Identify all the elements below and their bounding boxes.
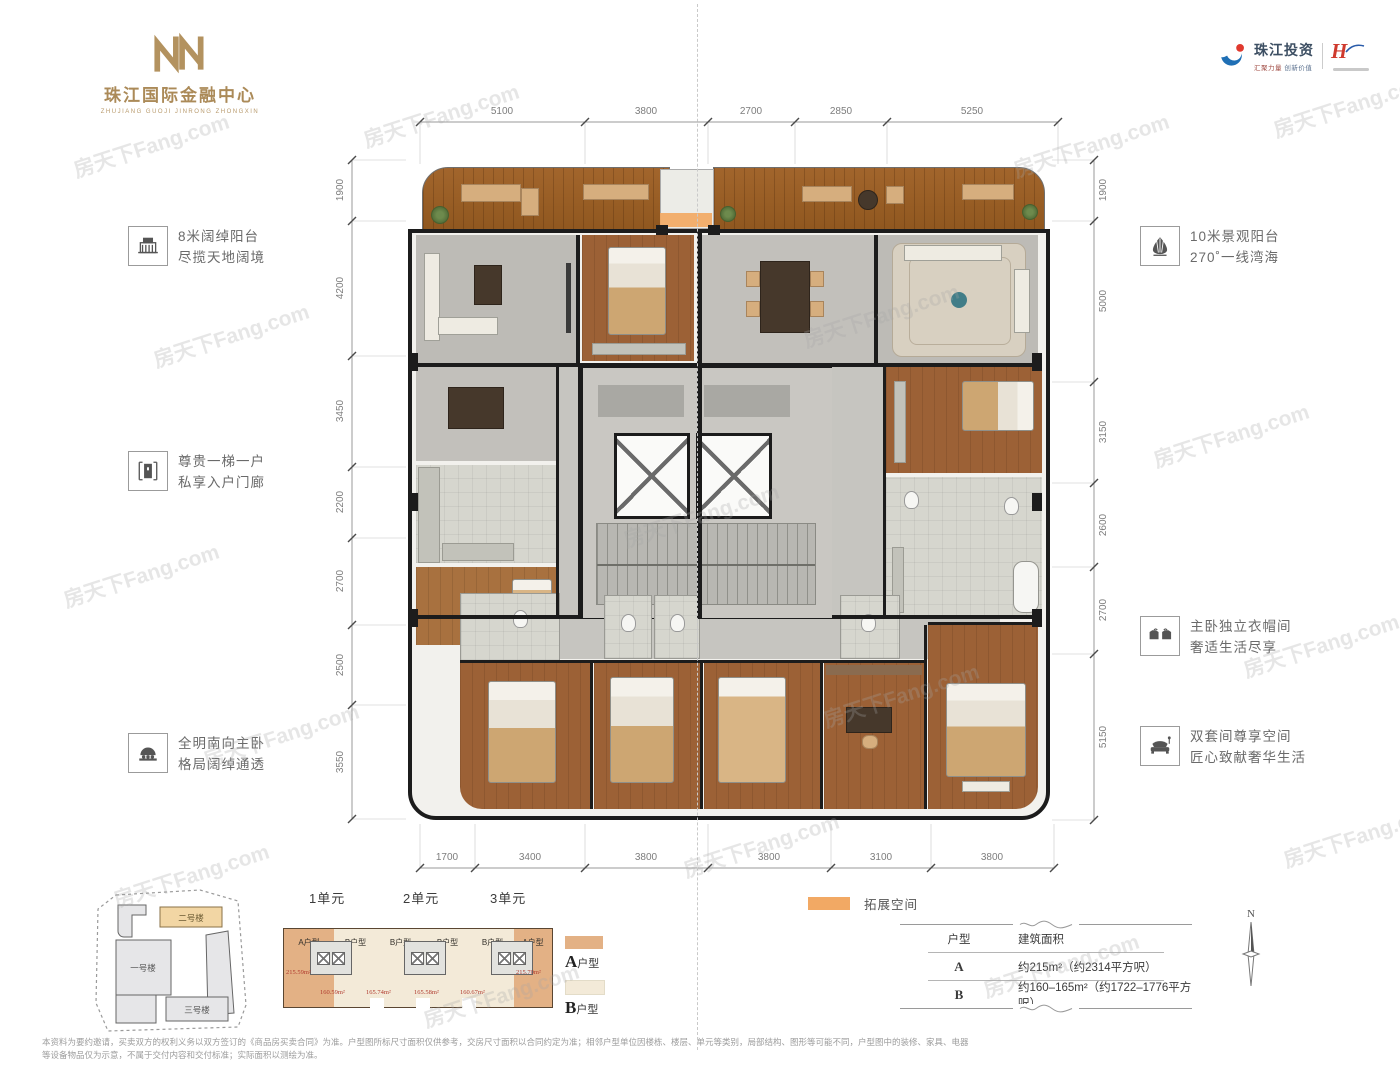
kitchen-left xyxy=(416,465,556,563)
svg-text:5000: 5000 xyxy=(1098,289,1109,312)
project-logo-mark-icon xyxy=(149,28,211,74)
watermark: 房天下Fang.com xyxy=(1279,796,1400,875)
wall xyxy=(874,235,878,363)
tv-cabinet xyxy=(566,263,571,333)
feature-text: 10米景观阳台 270˚一线湾海 xyxy=(1190,226,1280,268)
partner-logos: 珠江投资 汇聚力量 创新价值 H xyxy=(1218,40,1373,72)
chair xyxy=(810,271,824,287)
dining-room-right xyxy=(702,235,874,363)
column xyxy=(656,225,668,235)
wall xyxy=(832,615,1042,619)
wall xyxy=(700,663,703,809)
feature-desc: 270˚一线湾海 xyxy=(1190,247,1280,268)
feature-right-balcony: 10米景观阳台 270˚一线湾海 xyxy=(1140,226,1280,268)
dimension-line-left: 1900 4200 3450 2200 2700 2500 3550 xyxy=(330,150,410,830)
unit-1-label: 1单元 xyxy=(309,888,345,907)
shell-icon xyxy=(1140,226,1180,266)
watermark: 房天下Fang.com xyxy=(69,106,233,185)
svg-text:3400: 3400 xyxy=(519,852,542,863)
watermark: 房天下Fang.com xyxy=(149,296,313,375)
extension-swatch xyxy=(808,897,850,910)
plant xyxy=(431,206,449,224)
wall xyxy=(576,235,580,363)
bed xyxy=(488,681,556,783)
elevator-glyph xyxy=(411,952,424,965)
column xyxy=(408,353,418,371)
wall xyxy=(416,615,578,619)
type-a-letter: A xyxy=(565,952,577,971)
column xyxy=(1032,609,1042,627)
dimension-line-right: 1900 5000 3150 2600 2700 5150 xyxy=(1050,150,1130,830)
column xyxy=(408,609,418,627)
bathroom xyxy=(840,595,900,659)
type-a-label: A户型 xyxy=(565,952,605,972)
table-header-row: 户型 建筑面积 xyxy=(900,925,1192,952)
living-room-right xyxy=(878,235,1038,363)
balcony-lounge xyxy=(802,186,852,202)
site-building-1-label: 一号楼 xyxy=(130,963,156,973)
section-area: 165.58m² xyxy=(414,989,439,996)
svg-text:1900: 1900 xyxy=(1098,178,1109,201)
plant xyxy=(1022,204,1038,220)
section-area: 165.74m² xyxy=(366,989,391,996)
bench xyxy=(962,781,1010,792)
svg-text:2700: 2700 xyxy=(1098,598,1109,621)
feature-desc: 格局阔绰通透 xyxy=(178,754,265,775)
wall xyxy=(928,622,1038,625)
toilet xyxy=(670,614,685,632)
sofa xyxy=(438,317,498,335)
flourish-icon xyxy=(1013,1004,1079,1013)
sofa-icon xyxy=(1140,726,1180,766)
svg-text:3150: 3150 xyxy=(1098,420,1109,443)
floor-plan xyxy=(408,163,1050,820)
sofa xyxy=(904,245,1002,261)
column xyxy=(408,493,418,511)
feature-left-bedroom: 全明南向主卧 格局阔绰通透 xyxy=(128,733,265,775)
zhujiang-investment-icon xyxy=(1218,42,1246,70)
bedroom-4 xyxy=(594,663,700,809)
bathroom xyxy=(604,595,652,659)
balcony-icon xyxy=(128,226,168,266)
master-bedroom xyxy=(928,625,1038,809)
section-area: 160.67m² xyxy=(460,989,485,996)
elevator-glyph xyxy=(317,952,330,965)
dining-table xyxy=(760,261,810,333)
elevator-shaft xyxy=(696,433,772,519)
elevator-glyph xyxy=(513,952,526,965)
svg-text:5100: 5100 xyxy=(491,106,514,117)
type-a-swatch xyxy=(565,936,603,949)
kitchen-island xyxy=(442,543,514,561)
elevator-shaft xyxy=(614,433,690,519)
site-building-3-label: 三号楼 xyxy=(184,1005,210,1015)
svg-text:4200: 4200 xyxy=(335,276,346,299)
watermark: 房天下Fang.com xyxy=(59,536,223,615)
site-building-2-label: 二号楼 xyxy=(178,913,204,923)
entry-door-icon xyxy=(128,451,168,491)
feature-title: 主卧独立衣帽间 xyxy=(1190,616,1292,637)
unit-2-label: 2单元 xyxy=(403,888,439,907)
partner-swoosh-icon xyxy=(1345,43,1365,57)
feature-title: 10米景观阳台 xyxy=(1190,226,1280,247)
section-area: 215.70m² xyxy=(516,969,541,976)
bed xyxy=(608,247,666,335)
tagline-right: 创新价值 xyxy=(1284,65,1312,72)
balcony-chair xyxy=(886,186,904,204)
feature-title: 尊贵一梯一户 xyxy=(178,451,265,472)
bathroom xyxy=(654,595,700,659)
zhujiang-investment-text: 珠江投资 汇聚力量 创新价值 xyxy=(1254,40,1314,72)
balcony-right xyxy=(713,167,1045,233)
type-legend: A户型 B户型 xyxy=(565,936,605,1018)
project-logo: 珠江国际金融中心 ZHUJIANG GUOJI JINRONG ZHONGXIN xyxy=(55,28,305,115)
row-area: 约215m²（约2314平方呎） xyxy=(1018,959,1192,975)
flourish-icon xyxy=(1013,920,1079,929)
svg-text:5250: 5250 xyxy=(961,106,984,117)
watermark: 房天下Fang.com xyxy=(1269,66,1400,145)
kitchen-counter xyxy=(418,467,440,563)
column xyxy=(1032,493,1042,511)
site-building xyxy=(116,995,156,1023)
feature-desc: 奢适生活尽享 xyxy=(1190,637,1292,658)
chair xyxy=(810,301,824,317)
svg-text:2700: 2700 xyxy=(740,106,763,117)
feature-desc: 私享入户门廊 xyxy=(178,472,265,493)
master-bed xyxy=(946,683,1026,777)
svg-text:3800: 3800 xyxy=(758,852,781,863)
toilet xyxy=(1004,497,1019,515)
feature-text: 主卧独立衣帽间 奢适生活尽享 xyxy=(1190,616,1292,658)
chair xyxy=(746,271,760,287)
bathroom xyxy=(460,593,560,661)
table-rule xyxy=(928,952,1164,953)
wardrobe-icon xyxy=(1140,616,1180,656)
compass-n-label: N xyxy=(1236,908,1266,920)
key-plan-building: A户型 B户型 B户型 B户型 B户型 A户型 215.59m² 160.59m… xyxy=(283,928,553,1008)
type-b-swatch xyxy=(565,980,605,995)
hall-right xyxy=(832,367,884,615)
balcony-bench xyxy=(583,184,649,200)
row-type: A xyxy=(900,959,1018,975)
building-notch xyxy=(370,998,384,1009)
wall xyxy=(416,363,578,367)
svg-text:3100: 3100 xyxy=(870,852,893,863)
unit-divider-dashed-line xyxy=(697,4,698,1050)
family-dining-left xyxy=(416,367,556,461)
feature-left-balcony: 8米阔绰阳台 尽揽天地阔境 xyxy=(128,226,265,268)
col-type-header: 户型 xyxy=(900,931,1018,947)
balcony-sofa xyxy=(461,184,521,202)
wall xyxy=(883,367,886,615)
bedroom-2-right xyxy=(886,367,1042,473)
type-b-label: B户型 xyxy=(565,998,605,1018)
type-b-suffix: 户型 xyxy=(576,1004,598,1016)
bed-icon xyxy=(128,733,168,773)
floorplan-page: 房天下Fang.com 房天下Fang.com 房天下Fang.com 房天下F… xyxy=(0,0,1400,1065)
row-type: B xyxy=(900,987,1018,1003)
svg-text:2700: 2700 xyxy=(335,569,346,592)
bathtub xyxy=(1013,561,1039,613)
tv-cabinet xyxy=(894,381,906,463)
toilet xyxy=(904,491,919,509)
chair xyxy=(746,301,760,317)
unit-3-label: 3单元 xyxy=(490,888,526,907)
plant xyxy=(720,206,736,222)
col-area-header: 建筑面积 xyxy=(1018,931,1192,947)
svg-text:2850: 2850 xyxy=(830,106,853,117)
chair xyxy=(862,735,878,749)
feature-desc: 匠心致献奢华生活 xyxy=(1190,747,1306,768)
zhujiang-investment-tagline: 汇聚力量 创新价值 xyxy=(1254,62,1314,72)
stair-rail xyxy=(597,564,815,566)
dimension-line-bottom: 1700 3400 3800 3800 3100 3800 xyxy=(400,820,1070,880)
toilet xyxy=(513,610,528,628)
project-subtitle: ZHUJIANG GUOJI JINRONG ZHONGXIN xyxy=(55,109,305,115)
sofa xyxy=(1014,269,1030,333)
table-rule-bottom xyxy=(900,1008,1192,1009)
site-plan: 二号楼 一号楼 三号楼 xyxy=(88,885,273,1035)
bedroom-5 xyxy=(704,663,820,809)
type-b-letter: B xyxy=(565,998,576,1017)
toilet xyxy=(621,614,636,632)
bookshelf xyxy=(826,665,922,675)
area-table: 户型 建筑面积 A 约215m²（约2314平方呎） B 约160–165m²（… xyxy=(900,924,1192,1009)
balcony-table xyxy=(858,190,878,210)
core-glyph xyxy=(404,941,446,975)
column xyxy=(1032,353,1042,371)
entry-mat xyxy=(598,385,684,417)
living-room-left xyxy=(416,235,578,363)
svg-text:3550: 3550 xyxy=(335,750,346,773)
wall xyxy=(820,663,823,809)
feature-text: 双套间尊享空间 匠心致献奢华生活 xyxy=(1190,726,1306,768)
dimension-line-top: 5100 3800 2700 2850 5250 xyxy=(400,96,1070,166)
table-rule-top xyxy=(900,924,1192,925)
key-plan: 1单元 2单元 3单元 A户型 B户型 B户型 B户型 B户型 A户型 xyxy=(283,888,555,1020)
extension-legend: 拓展空间 xyxy=(808,894,918,913)
watermark: 房天下Fang.com xyxy=(1149,396,1313,475)
svg-text:3800: 3800 xyxy=(635,852,658,863)
table-rule xyxy=(928,980,1164,981)
elevator-glyph xyxy=(498,952,511,965)
logo-divider xyxy=(1322,43,1323,69)
building-notch xyxy=(416,998,430,1009)
elevator-glyph xyxy=(332,952,345,965)
section-area: 160.59m² xyxy=(320,989,345,996)
master-bath-closet xyxy=(886,477,1042,619)
wall xyxy=(590,663,593,809)
feature-right-closet: 主卧独立衣帽间 奢适生活尽享 xyxy=(1140,616,1292,658)
study-room xyxy=(824,663,924,809)
balcony-left xyxy=(422,167,670,233)
feature-text: 尊贵一梯一户 私享入户门廊 xyxy=(178,451,265,493)
wardrobe xyxy=(592,343,686,355)
table-row: A 约215m²（约2314平方呎） xyxy=(900,953,1192,980)
feature-right-suite: 双套间尊享空间 匠心致献奢华生活 xyxy=(1140,726,1306,768)
wall xyxy=(460,660,924,663)
bed xyxy=(718,677,786,783)
wall xyxy=(556,367,559,615)
extension-label: 拓展空间 xyxy=(864,894,918,913)
type-a-suffix: 户型 xyxy=(577,958,599,970)
entry-mat xyxy=(704,385,790,417)
rug-center xyxy=(951,292,967,308)
svg-text:3800: 3800 xyxy=(635,106,658,117)
bedroom-2-left xyxy=(582,235,694,361)
feature-left-entry: 尊贵一梯一户 私享入户门廊 xyxy=(128,451,265,493)
compass-needle-icon xyxy=(1240,920,1262,990)
elevator-glyph xyxy=(426,952,439,965)
svg-text:1900: 1900 xyxy=(335,178,346,201)
feature-title: 双套间尊享空间 xyxy=(1190,726,1306,747)
bed xyxy=(962,381,1034,431)
svg-text:2600: 2600 xyxy=(1098,513,1109,536)
balcony-sofa xyxy=(962,184,1014,200)
svg-text:3450: 3450 xyxy=(335,399,346,422)
table xyxy=(448,387,504,429)
svg-text:2500: 2500 xyxy=(335,653,346,676)
partner-script-logo: H xyxy=(1331,41,1373,71)
building-notch xyxy=(462,998,476,1009)
tagline-left: 汇聚力量 xyxy=(1254,65,1282,72)
wall xyxy=(702,363,1042,367)
partner-logo-small-text xyxy=(1333,68,1369,71)
feature-desc: 尽揽天地阔境 xyxy=(178,247,265,268)
zhujiang-investment-name: 珠江投资 xyxy=(1254,40,1314,60)
site-building xyxy=(118,905,146,937)
column xyxy=(708,225,720,235)
disclaimer-text: 本资料为要约邀请，买卖双方的权利义务以双方签订的《商品房买卖合同》为准。户型图所… xyxy=(42,1036,972,1062)
feature-text: 8米阔绰阳台 尽揽天地阔境 xyxy=(178,226,265,268)
coffee-table xyxy=(474,265,502,305)
feature-text: 全明南向主卧 格局阔绰通透 xyxy=(178,733,265,775)
feature-title: 8米阔绰阳台 xyxy=(178,226,265,247)
svg-text:3800: 3800 xyxy=(981,852,1004,863)
bedroom-3 xyxy=(460,663,590,809)
section-area: 215.59m² xyxy=(286,969,311,976)
project-title: 珠江国际金融中心 xyxy=(55,81,305,106)
svg-text:1700: 1700 xyxy=(436,852,459,863)
balcony-sofa xyxy=(521,188,539,216)
compass: N xyxy=(1236,908,1266,995)
stairs xyxy=(596,523,816,605)
desk xyxy=(846,707,892,733)
bed xyxy=(610,677,674,783)
core-glyph xyxy=(310,941,352,975)
wall xyxy=(924,625,927,809)
svg-text:5150: 5150 xyxy=(1098,725,1109,748)
hall-left xyxy=(558,367,578,615)
svg-text:2200: 2200 xyxy=(335,490,346,513)
feature-title: 全明南向主卧 xyxy=(178,733,265,754)
